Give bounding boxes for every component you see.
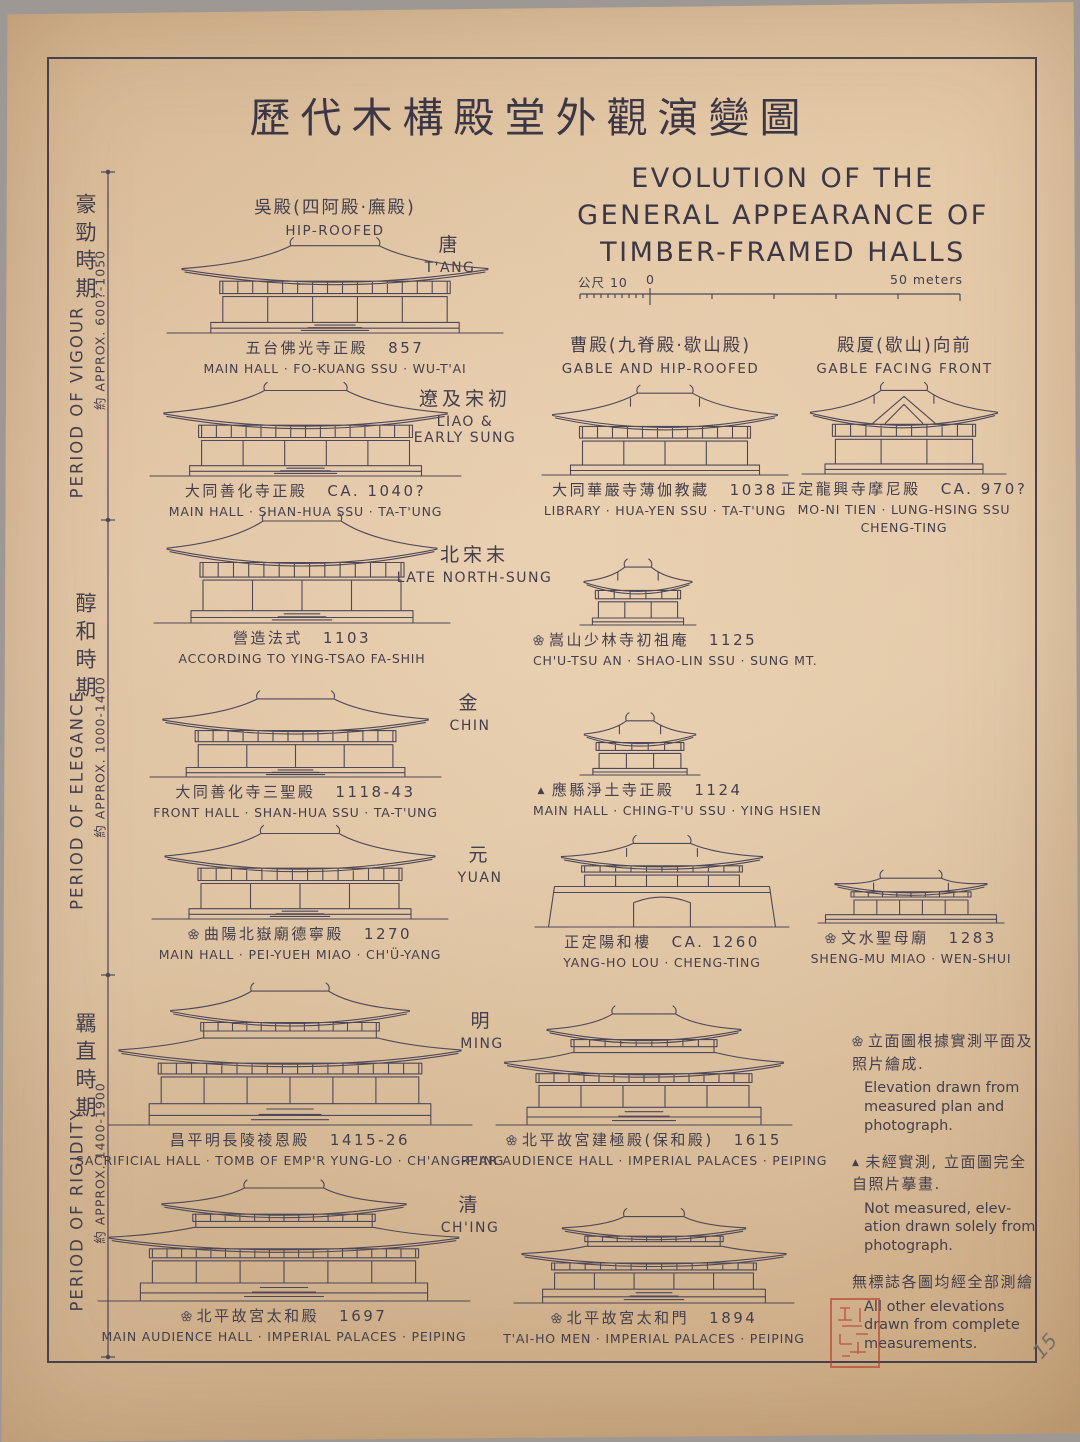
building-pao-ho-tien [494, 1008, 794, 1126]
building-tai-ho-tien [96, 1182, 472, 1302]
building-ching-tu-ssu-main-hall [578, 716, 702, 776]
caption-mo-ni-tien: 正定龍興寺摩尼殿 CA. 970?MO-NI TIEN · LUNG-HSING… [755, 478, 1053, 535]
page-title-chinese: 歷代木構殿堂外觀演變圖 [140, 84, 920, 144]
caption-en-shan-hua-ssu-front-hall: FRONT HALL · SHAN-HUA SSU · TA-T'UNG [103, 805, 488, 820]
roof-type-gable-front-cn: 殿厦(歇山)向前 [792, 332, 1017, 357]
roof-type-header-gable-hip: 曹殿(九脊殿·歇山殿) GABLE AND HIP-ROOFED [528, 332, 793, 377]
caption-ching-tu-ssu-main-hall: ▲應縣淨土寺正殿 1124MAIN HALL · CHING-T'U SSU ·… [533, 779, 747, 818]
caption-en-fo-kuang-ssu-main-hall: MAIN HALL · FO-KUANG SSU · WU-T'AI [120, 361, 550, 376]
pei-yueh-miao-main-hall-elevation-drawing [150, 826, 450, 920]
caption-cn-sheng-mu-miao: 文水聖母廟 1283 [771, 927, 1051, 948]
ching-tu-ssu-main-hall-elevation-drawing [578, 716, 702, 776]
caption-cn-ying-tsao-fa-shih: 營造法式 1103 [107, 627, 497, 648]
roof-type-hip-cn: 吳殿(四阿殿·廡殿) [170, 194, 500, 219]
hua-yen-ssu-library-elevation-drawing [540, 386, 790, 476]
scale-zero-label: 0 [646, 272, 655, 287]
caption-pao-ho-tien: 北平故宮建極殿(保和殿) 1615REAR AUDIENCE HALL · IM… [449, 1129, 839, 1168]
caption-cn-chu-tsu-an: 嵩山少林寺初祖庵 1125 [533, 629, 743, 650]
legend: 立面圖根據實測平面及照片繪成. Elevation drawn from mea… [852, 1030, 1040, 1369]
building-sheng-mu-miao [816, 872, 1006, 924]
caption-en-mo-ni-tien-2: CHENG-TING [755, 520, 1053, 535]
yang-ho-lou-elevation-drawing [533, 838, 791, 928]
page-title-english: EVOLUTION OF THE GENERAL APPEARANCE OF T… [558, 160, 1008, 271]
shan-hua-ssu-main-hall-elevation-drawing [148, 383, 463, 477]
caption-en-pao-ho-tien: REAR AUDIENCE HALL · IMPERIAL PALACES · … [449, 1153, 839, 1168]
tai-ho-tien-elevation-drawing [96, 1182, 472, 1302]
caption-en-tai-ho-tien: MAIN AUDIENCE HALL · IMPERIAL PALACES · … [51, 1329, 517, 1344]
caption-tai-ho-tien: 北平故宮太和殿 1697MAIN AUDIENCE HALL · IMPERIA… [51, 1305, 517, 1344]
building-pei-yueh-miao-main-hall [150, 826, 450, 920]
roof-type-header-gable-front: 殿厦(歇山)向前 GABLE FACING FRONT [792, 332, 1017, 377]
caption-en-tai-ho-men: T'AI-HO MEN · IMPERIAL PALACES · PEIPING [467, 1331, 841, 1346]
caption-chu-tsu-an: 嵩山少林寺初祖庵 1125CH'U-TSU AN · SHAO-LIN SSU … [533, 629, 743, 668]
scale-unit-label: 公尺 10 [578, 272, 628, 291]
caption-en-mo-ni-tien: MO-NI TIEN · LUNG-HSING SSU [755, 502, 1053, 517]
legend-not-measured-en: Not measured, elev­ation drawn solely fr… [864, 1200, 1040, 1257]
title-en-line2: GENERAL APPEARANCE OF [558, 197, 1008, 234]
pao-ho-tien-elevation-drawing [494, 1008, 794, 1126]
caption-pei-yueh-miao-main-hall: 曲陽北嶽廟德寧殿 1270MAIN HALL · PEI-YUEH MIAO ·… [105, 923, 495, 962]
tai-ho-men-elevation-drawing [512, 1212, 796, 1304]
fo-kuang-ssu-main-hall-elevation-drawing [165, 238, 505, 334]
legend-unmarked-cn: 無標誌各圖均經全部測繪. [852, 1271, 1040, 1294]
legend-item-measured: 立面圖根據實測平面及照片繪成. Elevation drawn from mea… [852, 1030, 1040, 1136]
red-artist-seal [830, 1298, 880, 1368]
building-shan-hua-ssu-main-hall [148, 383, 463, 477]
mo-ni-tien-elevation-drawing [800, 383, 1008, 475]
caption-cn-mo-ni-tien: 正定龍興寺摩尼殿 CA. 970? [755, 478, 1053, 499]
building-hua-yen-ssu-library [540, 386, 790, 476]
title-en-line1: EVOLUTION OF THE [558, 160, 1008, 197]
legend-item-not-measured: ▲未經實測, 立面圖完全自照片摹畫. Not measured, elev­at… [852, 1151, 1040, 1257]
caption-fo-kuang-ssu-main-hall: 五台佛光寺正殿 857MAIN HALL · FO-KUANG SSU · WU… [120, 337, 550, 376]
caption-cn-fo-kuang-ssu-main-hall: 五台佛光寺正殿 857 [120, 337, 550, 358]
building-chu-tsu-an [578, 562, 698, 626]
roof-type-gable-hip-cn: 曹殿(九脊殿·歇山殿) [528, 332, 793, 357]
building-mo-ni-tien [800, 383, 1008, 475]
legend-item-unmarked: 無標誌各圖均經全部測繪. All other elevations drawn … [852, 1271, 1040, 1354]
ying-tsao-fa-shih-elevation-drawing [152, 512, 452, 624]
caption-ying-tsao-fa-shih: 營造法式 1103ACCORDING TO YING-TSAO FA-SHIH [107, 627, 497, 666]
sidebar-period-vigour-en: PERIOD OF VIGOUR [68, 306, 87, 499]
building-chang-ling-sacrificial-hall [106, 984, 474, 1126]
caption-cn-shan-hua-ssu-front-hall: 大同善化寺三聖殿 1118-43 [103, 781, 488, 802]
flower-marker-icon [852, 1032, 868, 1050]
caption-cn-pei-yueh-miao-main-hall: 曲陽北嶽廟德寧殿 1270 [105, 923, 495, 944]
shan-hua-ssu-front-hall-elevation-drawing [148, 692, 443, 778]
building-fo-kuang-ssu-main-hall [165, 238, 505, 334]
caption-en-pei-yueh-miao-main-hall: MAIN HALL · PEI-YUEH MIAO · CH'Ü-YANG [105, 947, 495, 962]
scale-right-label: 50 meters [890, 272, 963, 287]
caption-en-ching-tu-ssu-main-hall: MAIN HALL · CHING-T'U SSU · YING HSIEN [533, 803, 747, 818]
caption-en-chu-tsu-an: CH'U-TSU AN · SHAO-LIN SSU · SUNG MT. [533, 653, 743, 668]
caption-sheng-mu-miao: 文水聖母廟 1283SHENG-MU MIAO · WEN-SHUI [771, 927, 1051, 966]
roof-type-gable-hip-en: GABLE AND HIP-ROOFED [528, 361, 793, 377]
legend-measured-cn: 立面圖根據實測平面及照片繪成. [852, 1030, 1040, 1075]
legend-not-measured-cn: ▲未經實測, 立面圖完全自照片摹畫. [852, 1151, 1040, 1196]
sidebar-period-elegance-en: PERIOD OF ELEGANCE [68, 690, 87, 910]
scale-bar: 公尺 10 0 50 meters [568, 272, 973, 308]
legend-measured-en: Elevation drawn from measured plan and p… [864, 1079, 1040, 1136]
chang-ling-sacrificial-hall-elevation-drawing [106, 984, 474, 1126]
caption-tai-ho-men: 北平故宮太和門 1894T'AI-HO MEN · IMPERIAL PALAC… [467, 1307, 841, 1346]
roof-type-gable-front-en: GABLE FACING FRONT [792, 361, 1017, 377]
building-tai-ho-men [512, 1212, 796, 1304]
caption-en-ying-tsao-fa-shih: ACCORDING TO YING-TSAO FA-SHIH [107, 651, 497, 666]
building-yang-ho-lou [533, 838, 791, 928]
caption-cn-ching-tu-ssu-main-hall: ▲應縣淨土寺正殿 1124 [533, 779, 747, 800]
building-shan-hua-ssu-front-hall [148, 692, 443, 778]
triangle-marker-icon: ▲ [852, 1153, 865, 1171]
caption-cn-shan-hua-ssu-main-hall: 大同善化寺正殿 CA. 1040? [103, 480, 508, 501]
caption-cn-pao-ho-tien: 北平故宮建極殿(保和殿) 1615 [449, 1129, 839, 1150]
sheet: 歷代木構殿堂外觀演變圖 EVOLUTION OF THE GENERAL APP… [0, 0, 1080, 1442]
sheng-mu-miao-elevation-drawing [816, 872, 1006, 924]
legend-unmarked-en: All other elevations drawn from comp­let… [864, 1298, 1040, 1355]
caption-en-sheng-mu-miao: SHENG-MU MIAO · WEN-SHUI [771, 951, 1051, 966]
title-en-line3: TIMBER-FRAMED HALLS [558, 234, 1008, 271]
caption-cn-tai-ho-tien: 北平故宮太和殿 1697 [51, 1305, 517, 1326]
building-ying-tsao-fa-shih [152, 512, 452, 624]
caption-shan-hua-ssu-front-hall: 大同善化寺三聖殿 1118-43FRONT HALL · SHAN-HUA SS… [103, 781, 488, 820]
caption-cn-tai-ho-men: 北平故宮太和門 1894 [467, 1307, 841, 1328]
chu-tsu-an-elevation-drawing [578, 562, 698, 626]
